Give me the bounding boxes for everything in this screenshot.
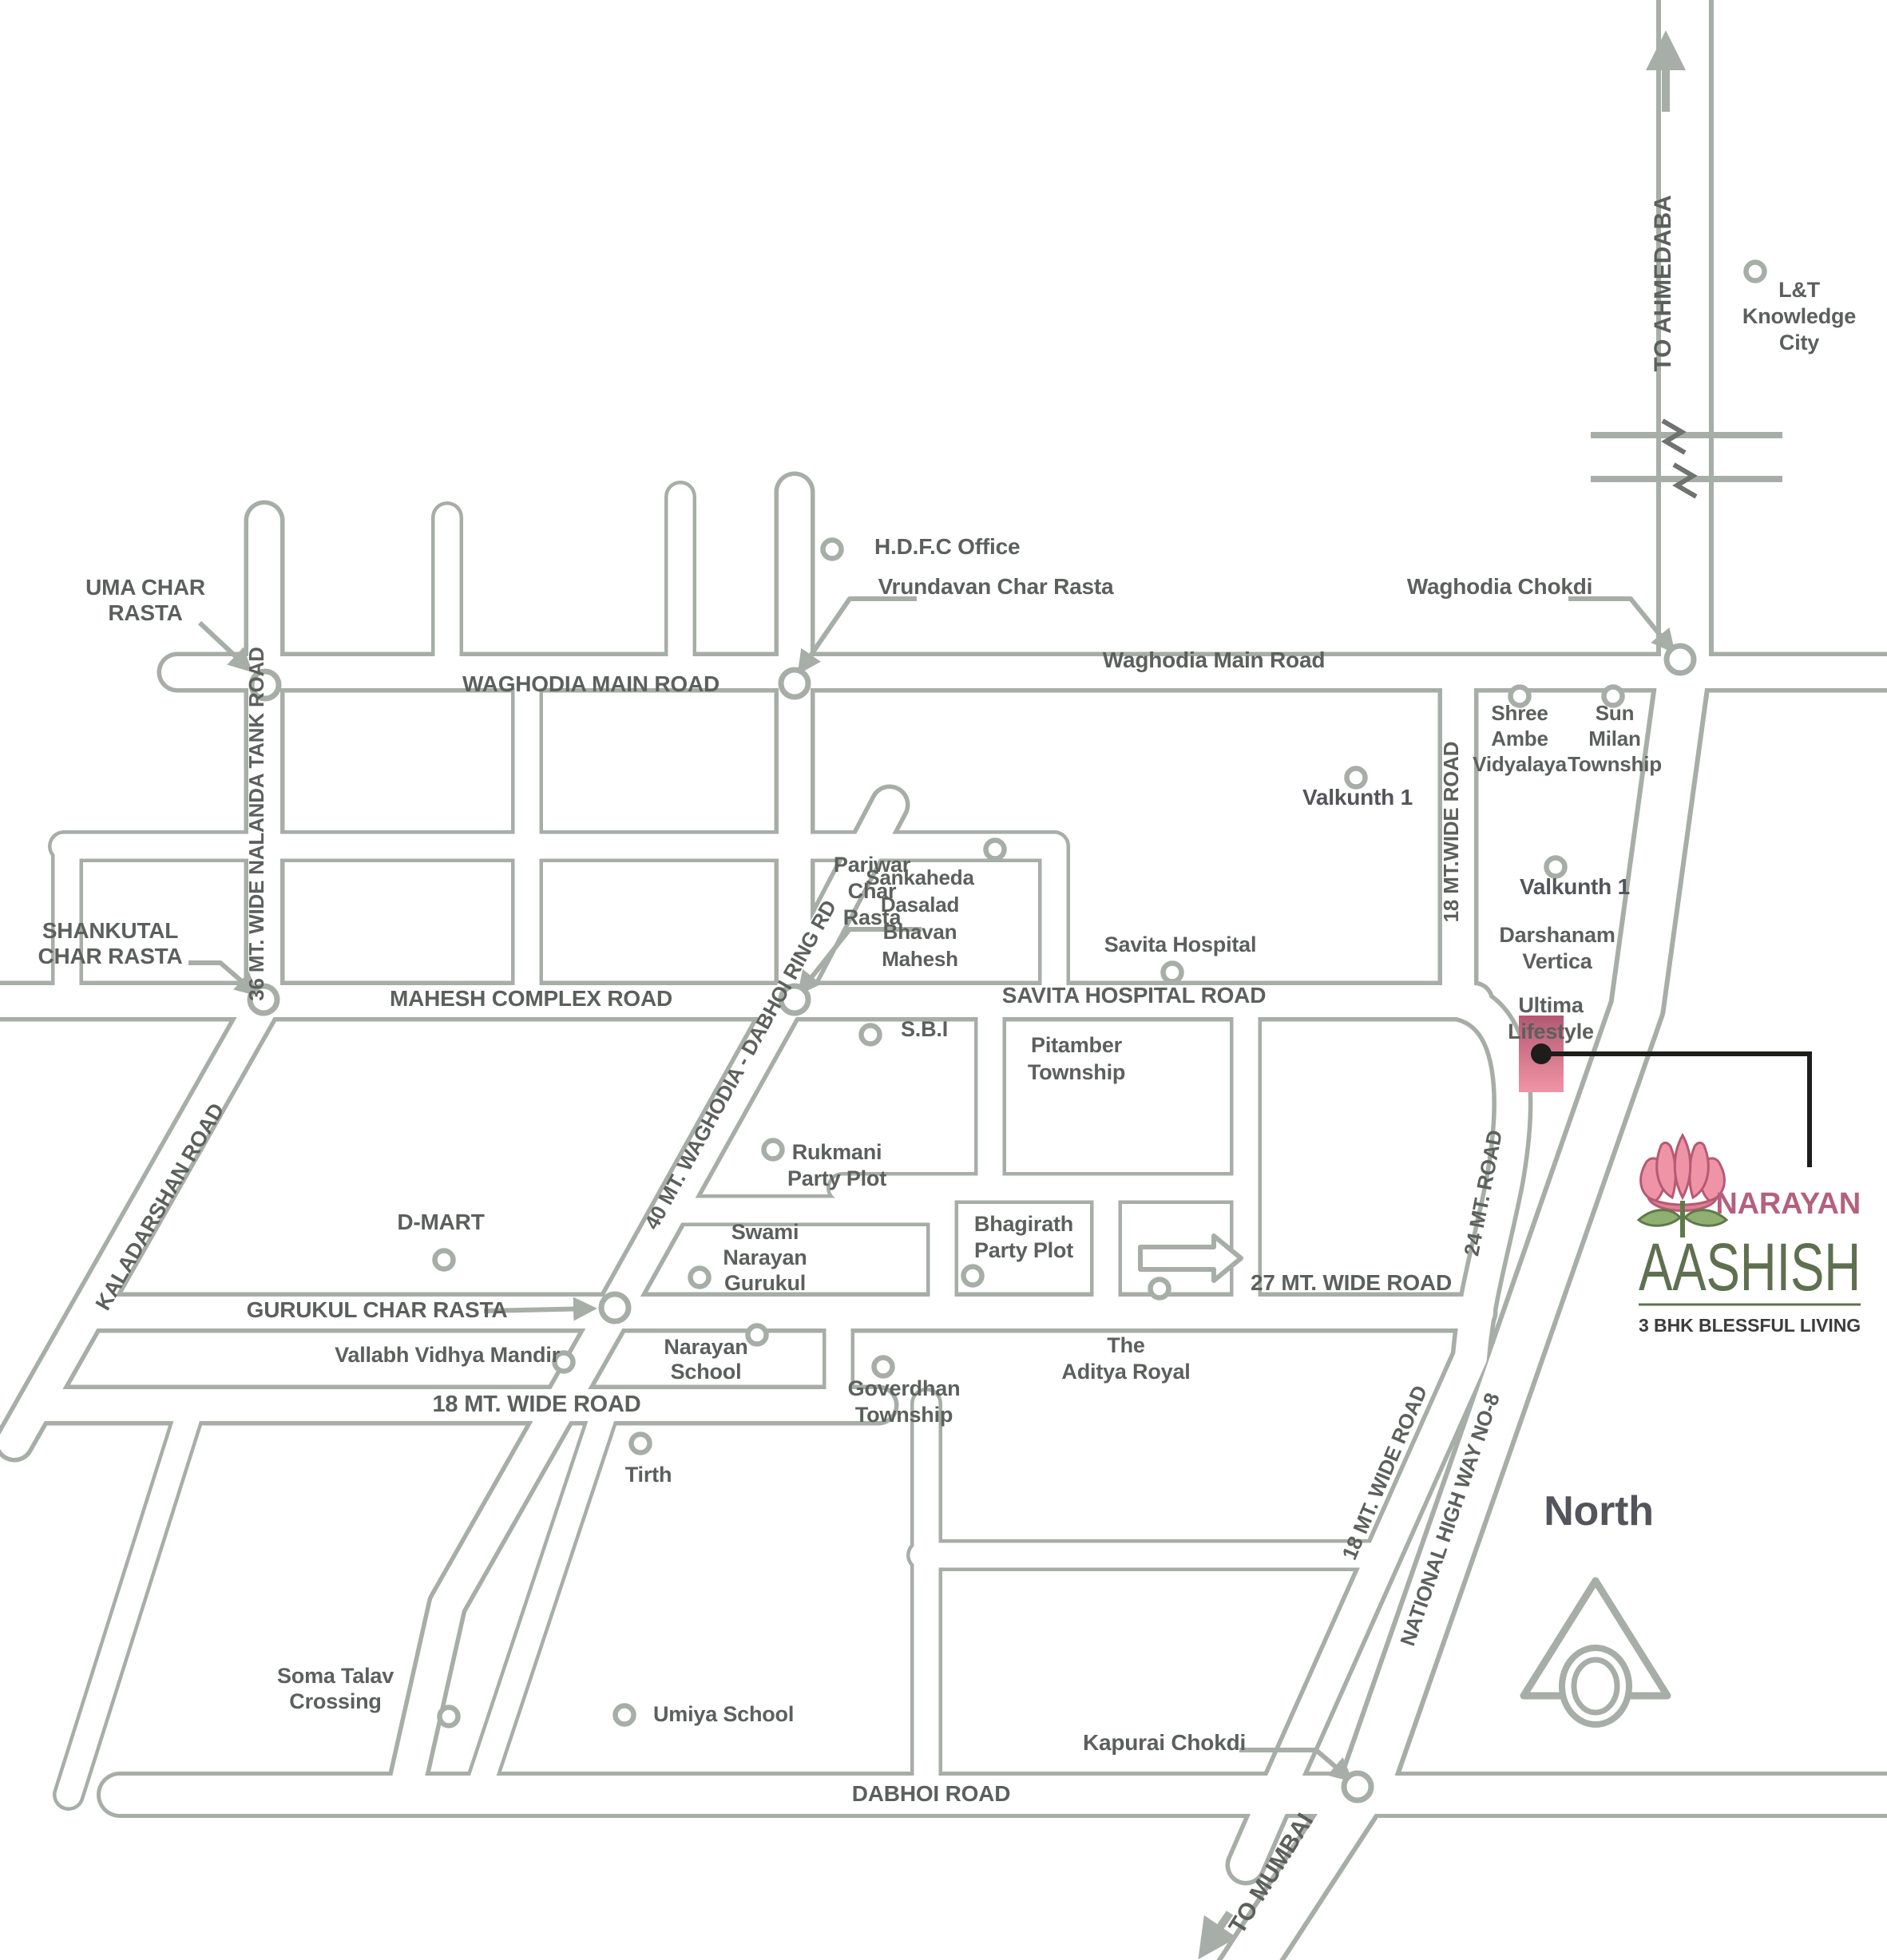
landmark-marker-icon-umiya-school bbox=[616, 1706, 634, 1724]
landmark-marker-icon-savita-hospital bbox=[1164, 964, 1182, 982]
roundabout-icon-vrundavan-char-rasta bbox=[781, 670, 808, 697]
label-d-mart: D-MART bbox=[397, 1210, 484, 1234]
landmark-marker-icon-sbi bbox=[862, 1026, 880, 1044]
access-arrow-icon bbox=[1140, 1236, 1241, 1281]
landmark-marker-icon-soma-talav-crossing bbox=[440, 1708, 458, 1726]
roundabout-icon-kapurai-chokdi bbox=[1344, 1773, 1371, 1800]
label-gurukul-char-rasta: GURUKUL CHAR RASTA bbox=[247, 1297, 508, 1322]
label-18mt-wide-road-horizontal: 18 MT. WIDE ROAD bbox=[432, 1392, 640, 1417]
label-waghodia-main-road-right: Waghodia Main Road bbox=[1103, 647, 1325, 672]
label-lt-knowledge-city: L&TKnowledgeCity bbox=[1742, 278, 1856, 354]
landmark-marker-icon-swami-narayan-gurukul bbox=[691, 1269, 709, 1287]
landmark-marker-icon-d-mart bbox=[435, 1251, 454, 1269]
narayan-aashish-logo: NARAYAN AASHISH 3 BHK BLESSFUL LIVING bbox=[1639, 1135, 1861, 1336]
label-vrundavan-char-rasta: Vrundavan Char Rasta bbox=[878, 574, 1114, 599]
label-vallabh-vidhya-mandir: Vallabh Vidhya Mandir bbox=[335, 1343, 561, 1367]
label-valkunth-1-west: Valkunth 1 bbox=[1302, 785, 1413, 810]
label-bhagirath-party-plot: BhagirathParty Plot bbox=[974, 1212, 1073, 1262]
landmark-marker-icon-rukmani-party-plot bbox=[764, 1141, 783, 1159]
label-swami-narayan-gurukul: SwamiNarayanGurukul bbox=[723, 1220, 807, 1295]
label-shankutal-char-rasta: SHANKUTALCHAR RASTA bbox=[38, 918, 182, 968]
label-waghodia-main-road-left: WAGHODIA MAIN ROAD bbox=[462, 671, 720, 696]
landmark-marker-icon-goverdhan-township bbox=[874, 1358, 893, 1376]
landmark-marker-icon-narayan-school bbox=[748, 1326, 767, 1344]
label-narayan-school: NarayanSchool bbox=[664, 1335, 747, 1384]
label-north: North bbox=[1544, 1488, 1654, 1534]
label-kaladarshan-road: KALADARSHAN ROAD bbox=[91, 1099, 229, 1314]
logo-tagline: 3 BHK BLESSFUL LIVING bbox=[1639, 1315, 1861, 1336]
logo-narayan: NARAYAN bbox=[1715, 1187, 1861, 1221]
label-kapurai-chokdi: Kapurai Chokdi bbox=[1083, 1730, 1246, 1755]
label-soma-talav-crossing: Soma TalavCrossing bbox=[277, 1664, 394, 1713]
roundabout-icon-gurukul-char-rasta bbox=[601, 1294, 628, 1321]
label-the-aditya-royal: TheAditya Royal bbox=[1061, 1333, 1190, 1384]
label-tirth: Tirth bbox=[625, 1463, 672, 1487]
label-rukmani-party-plot: RukmaniParty Plot bbox=[787, 1140, 886, 1190]
location-map: TO AHMEDABAL&TKnowledgeCityUMA CHARRASTA… bbox=[0, 0, 1887, 1960]
landmark-marker-icon-sankaheda-dasalad bbox=[986, 841, 1005, 859]
roundabout-icon-waghodia-chokdi bbox=[1667, 646, 1694, 673]
label-mahesh-complex-road: MAHESH COMPLEX ROAD bbox=[390, 986, 672, 1011]
landmark-marker-icon-party-plot-east bbox=[1151, 1280, 1169, 1298]
landmark-marker-icon-tirth bbox=[632, 1435, 650, 1453]
label-savita-hospital-road: SAVITA HOSPITAL ROAD bbox=[1002, 983, 1266, 1008]
label-shree-ambe-vidyalaya: ShreeAmbeVidyalaya bbox=[1473, 701, 1567, 776]
label-dabhoi-road: DABHOI ROAD bbox=[852, 1781, 1010, 1806]
landmark-marker-icon-bhagirath-party-plot bbox=[964, 1267, 982, 1285]
landmark-marker-icon-lt-knowledge-city bbox=[1746, 263, 1765, 281]
label-sbi: S.B.I bbox=[901, 1017, 948, 1041]
label-waghodia-chokdi: Waghodia Chokdi bbox=[1407, 574, 1592, 599]
landmark-marker-icon-hdfc-office bbox=[823, 540, 842, 559]
label-to-ahmedaba: TO AHMEDABA bbox=[1650, 195, 1676, 371]
site-dot-icon bbox=[1531, 1043, 1552, 1064]
label-savita-hospital: Savita Hospital bbox=[1104, 932, 1257, 956]
north-compass-icon bbox=[1524, 1581, 1667, 1724]
label-nalanda-tank-road: 36 MT. WIDE NALANDA TANK ROAD bbox=[244, 647, 268, 1000]
label-uma-char-rasta: UMA CHARRASTA bbox=[85, 575, 205, 625]
label-hdfc-office: H.D.F.C Office bbox=[874, 534, 1020, 559]
label-umiya-school: Umiya School bbox=[653, 1702, 794, 1726]
logo-aashish: AASHISH bbox=[1639, 1229, 1861, 1305]
lotus-logo-icon bbox=[1639, 1135, 1726, 1237]
label-valkunth-1-east: Valkunth 1 bbox=[1520, 874, 1630, 899]
label-pitamber-township: PitamberTownship bbox=[1028, 1033, 1125, 1084]
label-darshanam-vertica: DarshanamVertica bbox=[1499, 923, 1615, 973]
label-27mt-wide-road: 27 MT. WIDE ROAD bbox=[1251, 1270, 1452, 1295]
label-18mt-wide-road-vertical: 18 MT.WIDE ROAD bbox=[1439, 742, 1463, 923]
